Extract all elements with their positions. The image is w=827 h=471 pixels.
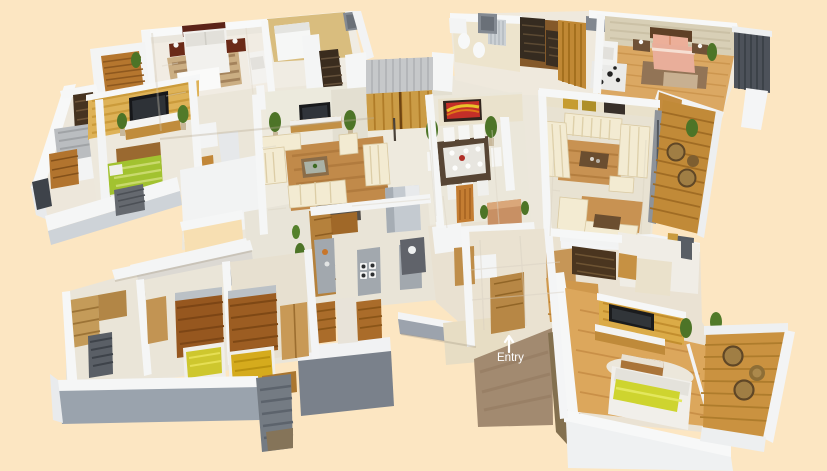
- svg-text:Entry: Entry: [497, 352, 524, 364]
